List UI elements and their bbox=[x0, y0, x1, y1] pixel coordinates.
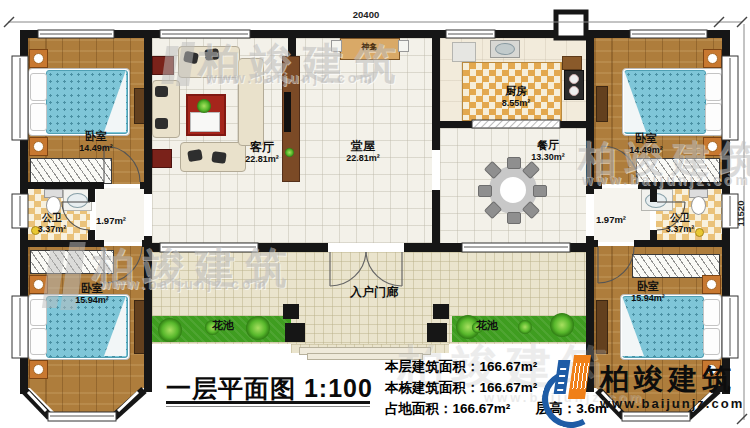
pillow bbox=[705, 73, 722, 101]
pillow bbox=[30, 103, 47, 131]
dining-room-label: 餐厅 13.30m² bbox=[508, 139, 588, 163]
watermark-url: www.baijunjz.com bbox=[582, 172, 750, 188]
sink-basin bbox=[67, 193, 88, 208]
lamp-icon bbox=[33, 141, 44, 152]
brand-logo-icon bbox=[540, 352, 598, 422]
dining-chair bbox=[533, 185, 547, 197]
living-room-label: 客厅 22.81m² bbox=[222, 140, 302, 165]
title-underline-thick bbox=[166, 401, 370, 404]
sink-basin bbox=[645, 193, 667, 208]
plant-cluster bbox=[518, 320, 532, 334]
pillow bbox=[30, 73, 47, 101]
vestibule-right-label: 1.97m² bbox=[586, 214, 636, 225]
left-windows bbox=[12, 56, 28, 358]
plant-medallion bbox=[158, 318, 182, 342]
dimension-top: 20400 bbox=[340, 9, 392, 20]
sink-basin bbox=[495, 43, 515, 55]
kitchen-pass-through bbox=[472, 120, 560, 128]
pillow bbox=[703, 299, 720, 326]
floor-plan: 柏竣建筑 www.baijunjz.com 柏竣建筑 www.baijunjz.… bbox=[0, 0, 750, 428]
wardrobe bbox=[30, 158, 112, 184]
flower-bed-right-label: 花池 bbox=[467, 319, 507, 332]
sofa-cushion bbox=[155, 118, 168, 129]
tv-icon bbox=[284, 92, 291, 132]
fridge bbox=[452, 42, 476, 62]
bathroom-right-label: 公卫 3.37m² bbox=[640, 212, 720, 235]
bedroom-bl-bay-floor bbox=[28, 386, 144, 416]
dresser bbox=[134, 88, 146, 124]
dining-chair bbox=[478, 185, 492, 197]
central-hall-label: 堂屋 22.81m² bbox=[323, 139, 403, 164]
brand-name: 柏竣建筑 bbox=[600, 360, 736, 400]
coffee-table bbox=[190, 112, 220, 132]
flue-shaft bbox=[556, 12, 586, 38]
bedroom-tr-label: 卧室 14.49m² bbox=[606, 132, 686, 156]
watermark-url: www.baijunjz.com bbox=[206, 70, 375, 86]
bedroom-br-label: 卧室 15.94m² bbox=[608, 280, 688, 304]
pillow bbox=[705, 103, 722, 131]
vestibule-left-label: 1.97m² bbox=[86, 215, 136, 226]
title-underline-thin bbox=[166, 406, 370, 407]
lamp-icon bbox=[33, 53, 44, 64]
kitchen-shelf bbox=[562, 56, 582, 70]
bedroom-tl-label: 卧室 14.49m² bbox=[56, 130, 136, 154]
watermark-logo bbox=[160, 42, 194, 88]
corner-cabinet bbox=[152, 149, 172, 168]
dresser bbox=[134, 300, 146, 354]
burner-icon bbox=[569, 86, 579, 96]
plant-icon bbox=[197, 99, 211, 113]
lamp-icon bbox=[33, 364, 44, 375]
kitchen-label: 厨房 8.55m² bbox=[476, 85, 556, 109]
bedroom-bl-label: 卧室 15.94m² bbox=[52, 282, 132, 306]
brand-url: www.baijunjz.com bbox=[600, 396, 744, 411]
flower-bed-left-label: 花池 bbox=[203, 319, 243, 332]
dimension-right: 11520 bbox=[735, 184, 746, 244]
dresser bbox=[596, 86, 608, 122]
shrine-label: 神龛 bbox=[340, 42, 398, 51]
burner-icon bbox=[569, 74, 579, 84]
stats-floor-area: 本层建筑面积：166.67m² bbox=[385, 358, 537, 376]
bathroom-left-label: 公卫 3.37m² bbox=[12, 212, 92, 235]
plant-medallion bbox=[246, 316, 270, 340]
plant-medallion bbox=[550, 313, 574, 337]
entry-porch-label: 入户门廊 bbox=[326, 285, 422, 299]
pillow bbox=[703, 328, 720, 355]
lamp-icon bbox=[707, 53, 718, 64]
lamp-icon bbox=[706, 279, 717, 290]
stats-building-area: 本栋建筑面积：166.67m² bbox=[385, 379, 537, 397]
dining-chair bbox=[507, 212, 521, 224]
pillow bbox=[30, 328, 47, 355]
